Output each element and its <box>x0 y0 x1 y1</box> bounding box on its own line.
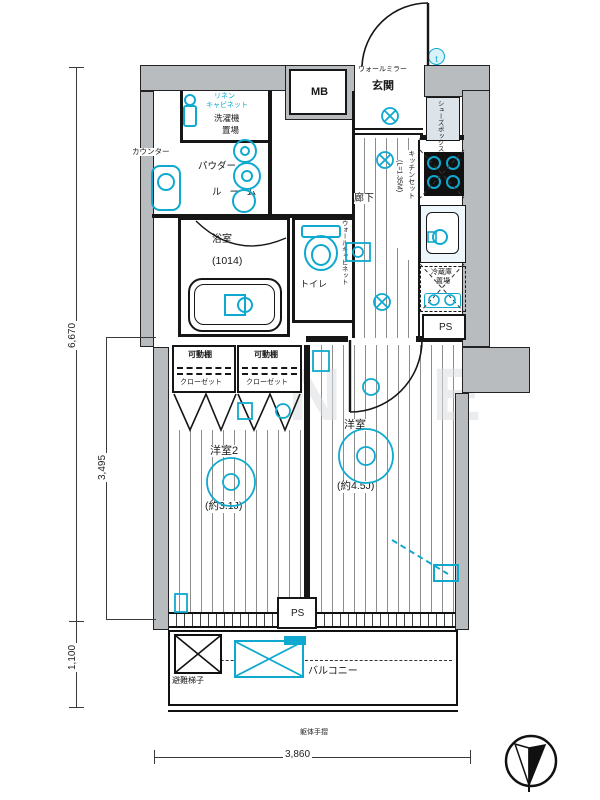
dim-left-room: 3,495 <box>97 453 108 482</box>
meter-box-label: MB <box>311 86 328 98</box>
dim-bottom-line <box>155 757 471 758</box>
fridge-space: 冷蔵庫 置場 <box>420 266 466 312</box>
evac-hatch-tag <box>284 636 306 645</box>
compass-icon <box>506 736 556 792</box>
fridge-label-1: 冷蔵庫 <box>431 269 452 277</box>
doorbell-symbol: t <box>428 48 445 65</box>
laundry-label-1: 洗濯機 <box>214 114 240 123</box>
kitchen-set-label: キッチンセット <box>407 150 415 260</box>
vanity-bowl <box>234 163 260 189</box>
closet-1-shelf-label: 可動棚 <box>188 351 212 360</box>
evac-ladder-label: 避難梯子 <box>172 677 204 686</box>
ps-bottom-label: PS <box>291 608 304 619</box>
entrance-door-arc <box>362 3 428 66</box>
evac-hatch-box <box>234 640 304 678</box>
meter-box: MB <box>289 69 347 115</box>
wall-right-protrusion <box>462 347 530 393</box>
wall-top-left <box>140 65 288 91</box>
balcony-outer-line <box>168 710 458 712</box>
closet-1-label: クローゼット <box>180 379 222 387</box>
pipe-space-right: PS <box>422 314 466 340</box>
shoes-box-label: シューズボックス <box>436 100 443 152</box>
closet-2-shelf-lines <box>242 367 297 375</box>
doorbell-letter: t <box>435 54 438 64</box>
dim-tick <box>69 707 84 708</box>
bathroom-label: 浴室 <box>212 234 232 245</box>
kitchen-length-label: (L=1.35M) <box>395 160 403 248</box>
powder-room-label-2: ルーム <box>212 188 264 198</box>
shoes-box: シューズボックス <box>426 97 460 141</box>
kitchen-sink <box>426 212 459 254</box>
vanity-bowl <box>241 147 249 155</box>
vanity-bowl <box>242 171 252 181</box>
niche-sink-bowl <box>158 174 174 190</box>
room2-size-label: (約3.1J) <box>205 501 242 513</box>
window-right <box>317 612 455 628</box>
powder-room-label-1: パウダー <box>198 162 236 172</box>
hallway-label: 廊下 <box>354 193 374 204</box>
room2-floor <box>169 430 303 617</box>
closet-1-shelf-lines <box>177 367 231 375</box>
washer-valve <box>184 106 196 126</box>
bathroom-size-label: (1014) <box>212 256 242 268</box>
partition-washer-right <box>268 91 272 217</box>
closet-2: 可動棚 クローゼット <box>237 345 302 393</box>
floor-plan: N E MB シューズボックス 可動棚 クローゼット 可動棚 クローゼット <box>0 0 600 800</box>
kitchen-counter <box>420 205 466 263</box>
switch-closet <box>238 403 252 419</box>
vanity-bowl <box>234 140 256 162</box>
rooms-divider-wall <box>304 345 310 618</box>
laundry-label-2: 置場 <box>222 126 239 135</box>
toilet-label: トイレ <box>300 280 327 290</box>
bathtub <box>188 278 282 332</box>
fridge-icon <box>424 293 461 308</box>
dim-tick <box>470 750 471 764</box>
wall-left-upper <box>140 91 154 347</box>
entrance-label: 玄関 <box>372 80 394 92</box>
room2-label: 洋室2 <box>210 445 238 457</box>
bath-drain-icon <box>224 294 246 316</box>
fridge-label-2: 置場 <box>436 278 450 286</box>
dim-bottom: 3,860 <box>283 749 312 760</box>
entrance-step-line-b <box>355 133 423 135</box>
dim-left-balcony: 1,100 <box>67 643 78 672</box>
wall-right <box>462 90 490 347</box>
room1-size-label: (約4.5J) <box>337 481 374 493</box>
handrail-label: 躯体手摺 <box>300 729 328 737</box>
wall-left-lower <box>153 347 169 630</box>
evac-ladder-box <box>174 634 222 674</box>
dim-tick <box>154 750 155 764</box>
dim-left-total: 6,670 <box>67 321 78 350</box>
stove <box>424 152 464 196</box>
wall-mirror-label: ウォールミラー <box>358 66 407 74</box>
closet-1: 可動棚 クローゼット <box>172 345 236 393</box>
wall-right-lower <box>455 393 469 630</box>
pipe-space-bottom: PS <box>277 597 317 629</box>
niche-sink <box>152 166 180 210</box>
partition-washer-bottom <box>180 140 270 143</box>
dim-ext <box>106 337 156 338</box>
linen-label-2: キャビネット <box>206 102 248 110</box>
wall-cabinet-label: ウォールキャビネット <box>340 220 347 316</box>
closet-1-folding-door <box>174 394 236 430</box>
washer-valve-knob <box>185 95 195 105</box>
counter-label: カウンター <box>132 148 170 156</box>
closet-2-shelf-label: 可動棚 <box>254 351 278 360</box>
balcony-label: バルコニー <box>308 666 358 677</box>
partition-washer-left <box>180 91 183 143</box>
linen-label-1: リネン <box>214 93 235 101</box>
light-entrance <box>382 108 398 124</box>
window-left <box>169 612 277 628</box>
dim-tick <box>69 67 84 68</box>
closet-2-label: クローゼット <box>246 379 288 387</box>
room1-top-wall-a <box>306 336 348 342</box>
room1-label: 洋室 <box>344 419 366 431</box>
dim-ext <box>106 619 156 620</box>
entrance-step-line-a <box>355 128 423 130</box>
ps-right-label: PS <box>439 322 452 333</box>
